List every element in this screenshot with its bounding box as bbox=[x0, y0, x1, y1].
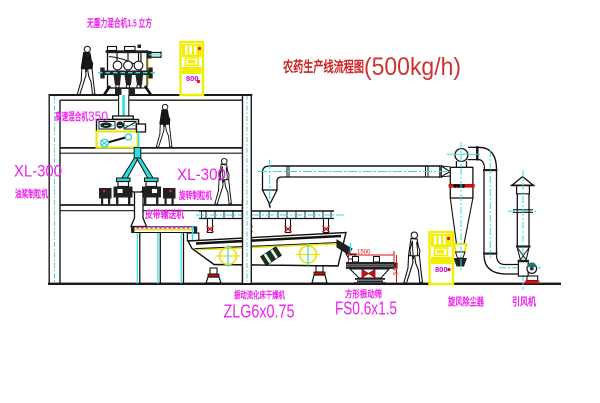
svg-text:XL-300: XL-300 bbox=[14, 162, 62, 181]
svg-text:(500kg/h): (500kg/h) bbox=[364, 53, 461, 81]
svg-text:旋转制粒机: 旋转制粒机 bbox=[178, 189, 212, 202]
svg-text:1500: 1500 bbox=[357, 250, 371, 256]
svg-text:油桨制粒机: 油桨制粒机 bbox=[15, 188, 48, 201]
svg-text:引风机: 引风机 bbox=[512, 295, 536, 308]
svg-text:350: 350 bbox=[88, 108, 108, 124]
svg-text:高速混合机: 高速混合机 bbox=[55, 110, 88, 123]
svg-text:XL-300: XL-300 bbox=[177, 165, 226, 184]
svg-text:皮带输送机: 皮带输送机 bbox=[144, 208, 184, 221]
svg-text:800: 800 bbox=[186, 74, 199, 83]
svg-text:Φ800: Φ800 bbox=[454, 184, 466, 189]
svg-text:无重力混合机1.5 立方: 无重力混合机1.5 立方 bbox=[86, 17, 152, 30]
svg-text:800: 800 bbox=[435, 265, 448, 274]
svg-text:546: 546 bbox=[394, 264, 400, 275]
svg-text:FS0.6x1.5: FS0.6x1.5 bbox=[335, 299, 397, 319]
svg-text:旋风除尘器: 旋风除尘器 bbox=[447, 295, 484, 308]
svg-text:农药生产线流程图: 农药生产线流程图 bbox=[282, 58, 364, 76]
svg-text:ZLG6x0.75: ZLG6x0.75 bbox=[224, 302, 295, 322]
svg-text:振动流化床干燥机: 振动流化床干燥机 bbox=[234, 290, 285, 302]
